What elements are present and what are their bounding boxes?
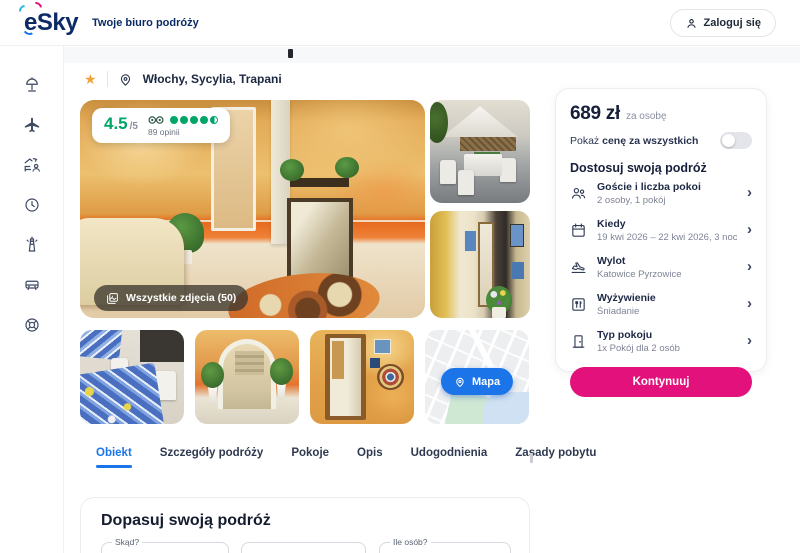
gallery-photo-patio[interactable]: [430, 100, 530, 203]
star-rating-icon: ★: [84, 72, 97, 86]
last-minute-clock-icon[interactable]: [23, 196, 41, 214]
option-room-type[interactable]: Typ pokoju 1x Pokój dla 2 osób ›: [570, 323, 752, 360]
tab-pokoje[interactable]: Pokoje: [291, 447, 329, 468]
chevron-right-icon: ›: [747, 259, 752, 276]
tab-zasady-pobytu[interactable]: Zasady pobytu: [515, 447, 596, 468]
tab-udogodnienia[interactable]: Udogodnienia: [411, 447, 488, 468]
page: eSky Twoje biuro podróży Zaloguj się: [0, 0, 800, 553]
map-pin-icon: [454, 376, 466, 388]
flights-icon[interactable]: [23, 116, 41, 134]
car-rental-icon[interactable]: [23, 276, 41, 294]
login-button-label: Zaloguj się: [704, 17, 761, 29]
price-suffix: za osobę: [626, 111, 667, 122]
clipped-title-strip: [64, 47, 800, 63]
origin-field-label: Skąd?: [112, 538, 142, 547]
destination-field[interactable]: [241, 542, 366, 553]
rating-badge[interactable]: 4.5 /5 89 opinii: [92, 108, 230, 143]
option-guests[interactable]: Goście i liczba pokoi 2 osoby, 1 pokój ›: [570, 175, 752, 212]
reviews-count: 89 opinii: [148, 127, 218, 137]
rating-score: 4.5: [104, 114, 128, 134]
toggle-knob: [722, 134, 735, 147]
login-button[interactable]: Zaloguj się: [670, 9, 776, 37]
top-header: eSky Twoje biuro podróży Zaloguj się: [0, 0, 800, 46]
rating-outof: /5: [130, 121, 138, 132]
tab-overflow-fragment: [530, 453, 533, 463]
all-photos-button[interactable]: Wszystkie zdjęcia (50): [94, 285, 248, 311]
tab-bar: Obiekt Szczegóły podróży Pokoje Opis Udo…: [80, 447, 596, 468]
price: 689 zł: [570, 103, 620, 125]
continue-button[interactable]: Kontynuuj: [570, 367, 752, 397]
option-label: Typ pokoju: [597, 329, 737, 341]
option-label: Goście i liczba pokoi: [597, 181, 737, 193]
esky-logo[interactable]: eSky: [24, 8, 78, 38]
customize-title: Dostosuj swoją podróż: [570, 161, 752, 175]
chevron-right-icon: ›: [747, 296, 752, 313]
origin-field[interactable]: Skąd?: [101, 542, 229, 553]
all-photos-label: Wszystkie zdjęcia (50): [126, 292, 236, 304]
option-label: Wyżywienie: [597, 292, 737, 304]
departure-plane-icon: [570, 259, 587, 276]
meals-icon: [570, 296, 587, 313]
thumbnail-archway[interactable]: [195, 330, 299, 424]
brand-tagline: Twoje biuro podróży: [92, 17, 199, 29]
vacation-icon[interactable]: [23, 76, 41, 94]
photos-icon: [106, 292, 119, 305]
booking-panel: 689 zł za osobę Pokaż cenę za wszystkich…: [555, 88, 767, 372]
option-dates[interactable]: Kiedy 19 kwi 2026 – 22 kwi 2026, 3 noce …: [570, 212, 752, 249]
clipped-title-fragment: [288, 49, 293, 58]
help-icon[interactable]: [23, 316, 41, 334]
option-label: Kiedy: [597, 218, 737, 230]
chevron-right-icon: ›: [747, 185, 752, 202]
option-label: Wylot: [597, 255, 737, 267]
option-value: Śniadanie: [597, 306, 737, 317]
location-pin-icon: [118, 72, 133, 87]
location-row: ★ Włochy, Sycylia, Trapani: [84, 68, 282, 90]
option-meals[interactable]: Wyżywienie Śniadanie ›: [570, 286, 752, 323]
tab-obiekt[interactable]: Obiekt: [96, 447, 132, 468]
left-sidebar: [0, 46, 64, 553]
room-type-icon: [570, 333, 587, 350]
option-value: 19 kwi 2026 – 22 kwi 2026, 3 noce: [597, 232, 737, 243]
option-value: Katowice Pyrzowice: [597, 269, 737, 280]
option-departure[interactable]: Wylot Katowice Pyrzowice ›: [570, 249, 752, 286]
chevron-right-icon: ›: [747, 222, 752, 239]
flight-hotel-icon[interactable]: [23, 156, 41, 174]
map-button[interactable]: Mapa: [441, 368, 513, 395]
trip-form-title: Dopasuj swoją podróż: [101, 512, 271, 530]
show-price-label: Pokaż cenę za wszystkich: [570, 135, 698, 147]
calendar-icon: [570, 222, 587, 239]
gallery-photo-hallway[interactable]: [430, 211, 530, 318]
trip-form-card: Dopasuj swoją podróż Skąd? Ile osób?: [80, 497, 530, 553]
map-tile[interactable]: Mapa: [425, 330, 529, 424]
tripadvisor-owl-icon: [148, 115, 164, 125]
divider: [107, 71, 108, 87]
persons-field[interactable]: Ile osób?: [379, 542, 511, 553]
chevron-right-icon: ›: [747, 333, 752, 350]
user-icon: [685, 17, 698, 30]
thumbnail-doorway[interactable]: [310, 330, 414, 424]
map-button-label: Mapa: [472, 376, 500, 388]
tab-szczegoly-podrozy[interactable]: Szczegóły podróży: [160, 447, 264, 468]
persons-field-label: Ile osób?: [390, 538, 431, 547]
attractions-lighthouse-icon[interactable]: [23, 236, 41, 254]
thumbnail-dining-room[interactable]: [80, 330, 184, 424]
location-text: Włochy, Sycylia, Trapani: [143, 72, 282, 86]
price-toggle[interactable]: [720, 132, 752, 149]
option-value: 1x Pokój dla 2 osób: [597, 343, 737, 354]
option-value: 2 osoby, 1 pokój: [597, 195, 737, 206]
rating-dots: [170, 116, 218, 124]
guests-icon: [570, 185, 587, 202]
tab-opis[interactable]: Opis: [357, 447, 383, 468]
